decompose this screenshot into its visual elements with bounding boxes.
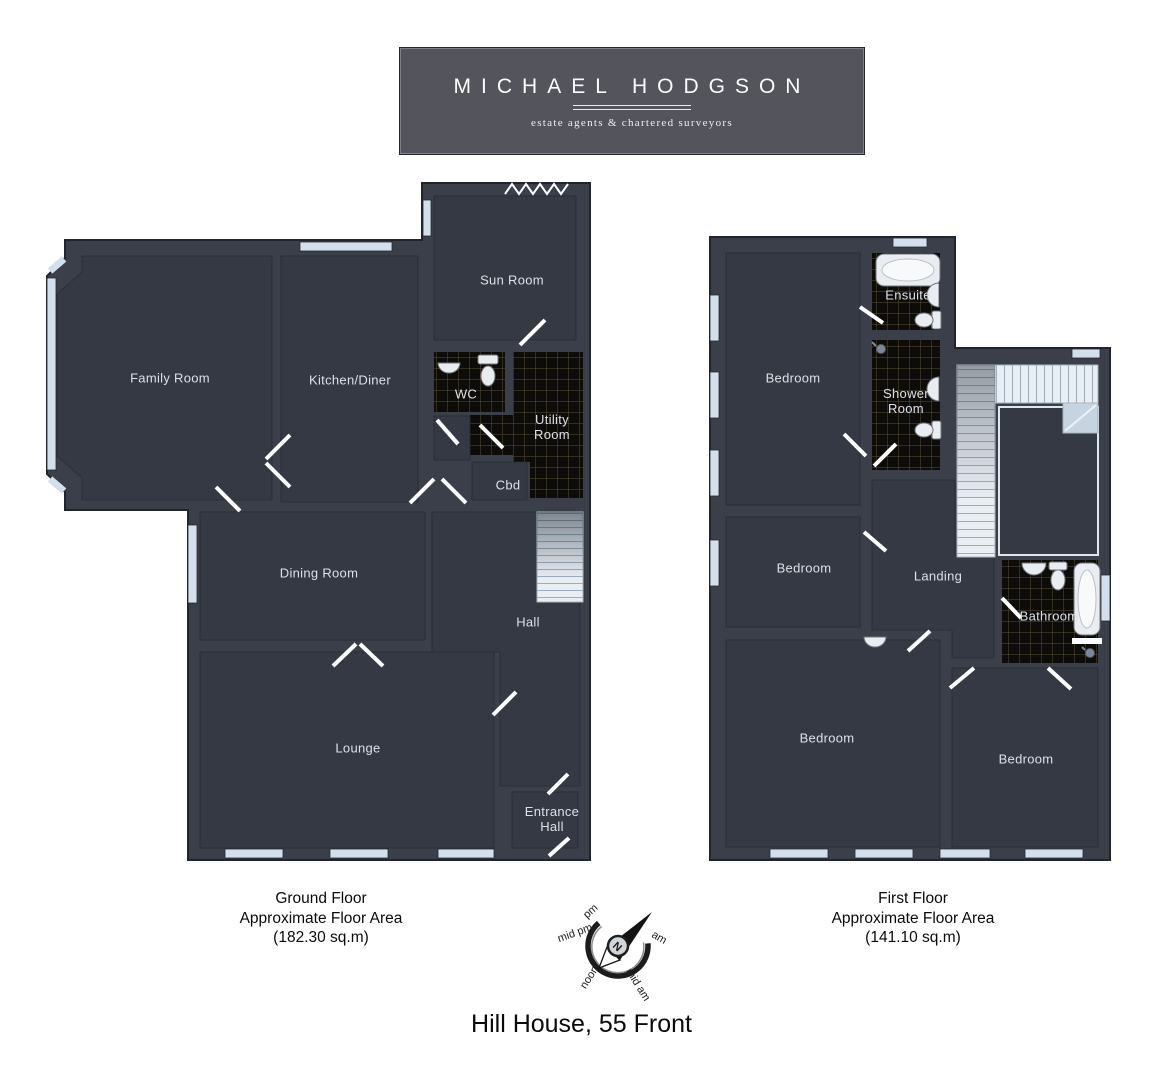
ground-staircase [537,512,583,602]
bathroom-bath-icon [1072,563,1102,644]
room-label-cbd: Cbd [496,478,521,493]
first-floor-area-label: Approximate Floor Area [733,909,1093,929]
room-label-entrance-hall: Entrance Hall [514,804,590,834]
first-staircase [957,365,1098,557]
agency-tagline: estate agents & chartered surveyors [400,117,864,129]
room-label-wc: WC [455,387,477,402]
compass-center: N [608,936,628,956]
room-label-landing: Landing [914,569,962,584]
room-label-shower-room: Shower Room [874,386,938,416]
room-label-sun-room: Sun Room [480,273,544,288]
ensuite-bath-icon [876,254,940,286]
ground-room-floors [57,196,583,848]
ground-floor-name: Ground Floor [141,889,501,909]
room-label-lounge: Lounge [335,741,380,756]
banner-divider [573,105,691,110]
room-label-family-room: Family Room [130,371,210,386]
ground-floor-area-value: (182.30 sq.m) [141,928,501,948]
compass-label-am: am [649,929,668,947]
ensuite-toilet-icon [915,311,941,329]
first-floor-drawing [700,225,1120,870]
agency-name: MICHAEL HODGSON [400,75,864,99]
room-label-kitchen-diner: Kitchen/Diner [309,373,391,388]
first-floor-area-value: (141.10 sq.m) [733,928,1093,948]
room-label-bedroom-2: Bedroom [777,561,832,576]
room-label-bedroom-1: Bedroom [766,371,821,386]
shower-room-toilet-icon [915,421,941,439]
room-label-bedroom-4: Bedroom [999,752,1054,767]
room-label-dining-room: Dining Room [280,566,358,581]
first-floor-name: First Floor [733,889,1093,909]
agency-banner: MICHAEL HODGSON estate agents & chartere… [399,47,865,155]
ground-floor-plan: Family Room Kitchen/Diner Sun Room WC Ut… [40,170,600,870]
room-label-ensuite: Ensuite [885,288,930,303]
room-label-bedroom-3: Bedroom [800,731,855,746]
first-floor-caption: First Floor Approximate Floor Area (141.… [733,889,1093,948]
room-label-bathroom: Bathroom [1020,609,1079,624]
ground-floor-area-label: Approximate Floor Area [141,909,501,929]
compass-label-pm: pm [581,902,600,921]
room-label-utility-room: Utility Room [526,412,578,442]
room-label-hall: Hall [516,615,540,630]
property-title: Hill House, 55 Front [0,1010,1163,1039]
floorplan-page: MICHAEL HODGSON estate agents & chartere… [0,0,1163,1080]
ground-floor-caption: Ground Floor Approximate Floor Area (182… [141,889,501,948]
first-floor-plan: Bedroom Ensuite Shower Room Bedroom Land… [700,225,1120,870]
sun-compass: N pm mid pm noon mid am am [548,881,688,1011]
compass-label-mid-am: mid am [623,966,652,1003]
